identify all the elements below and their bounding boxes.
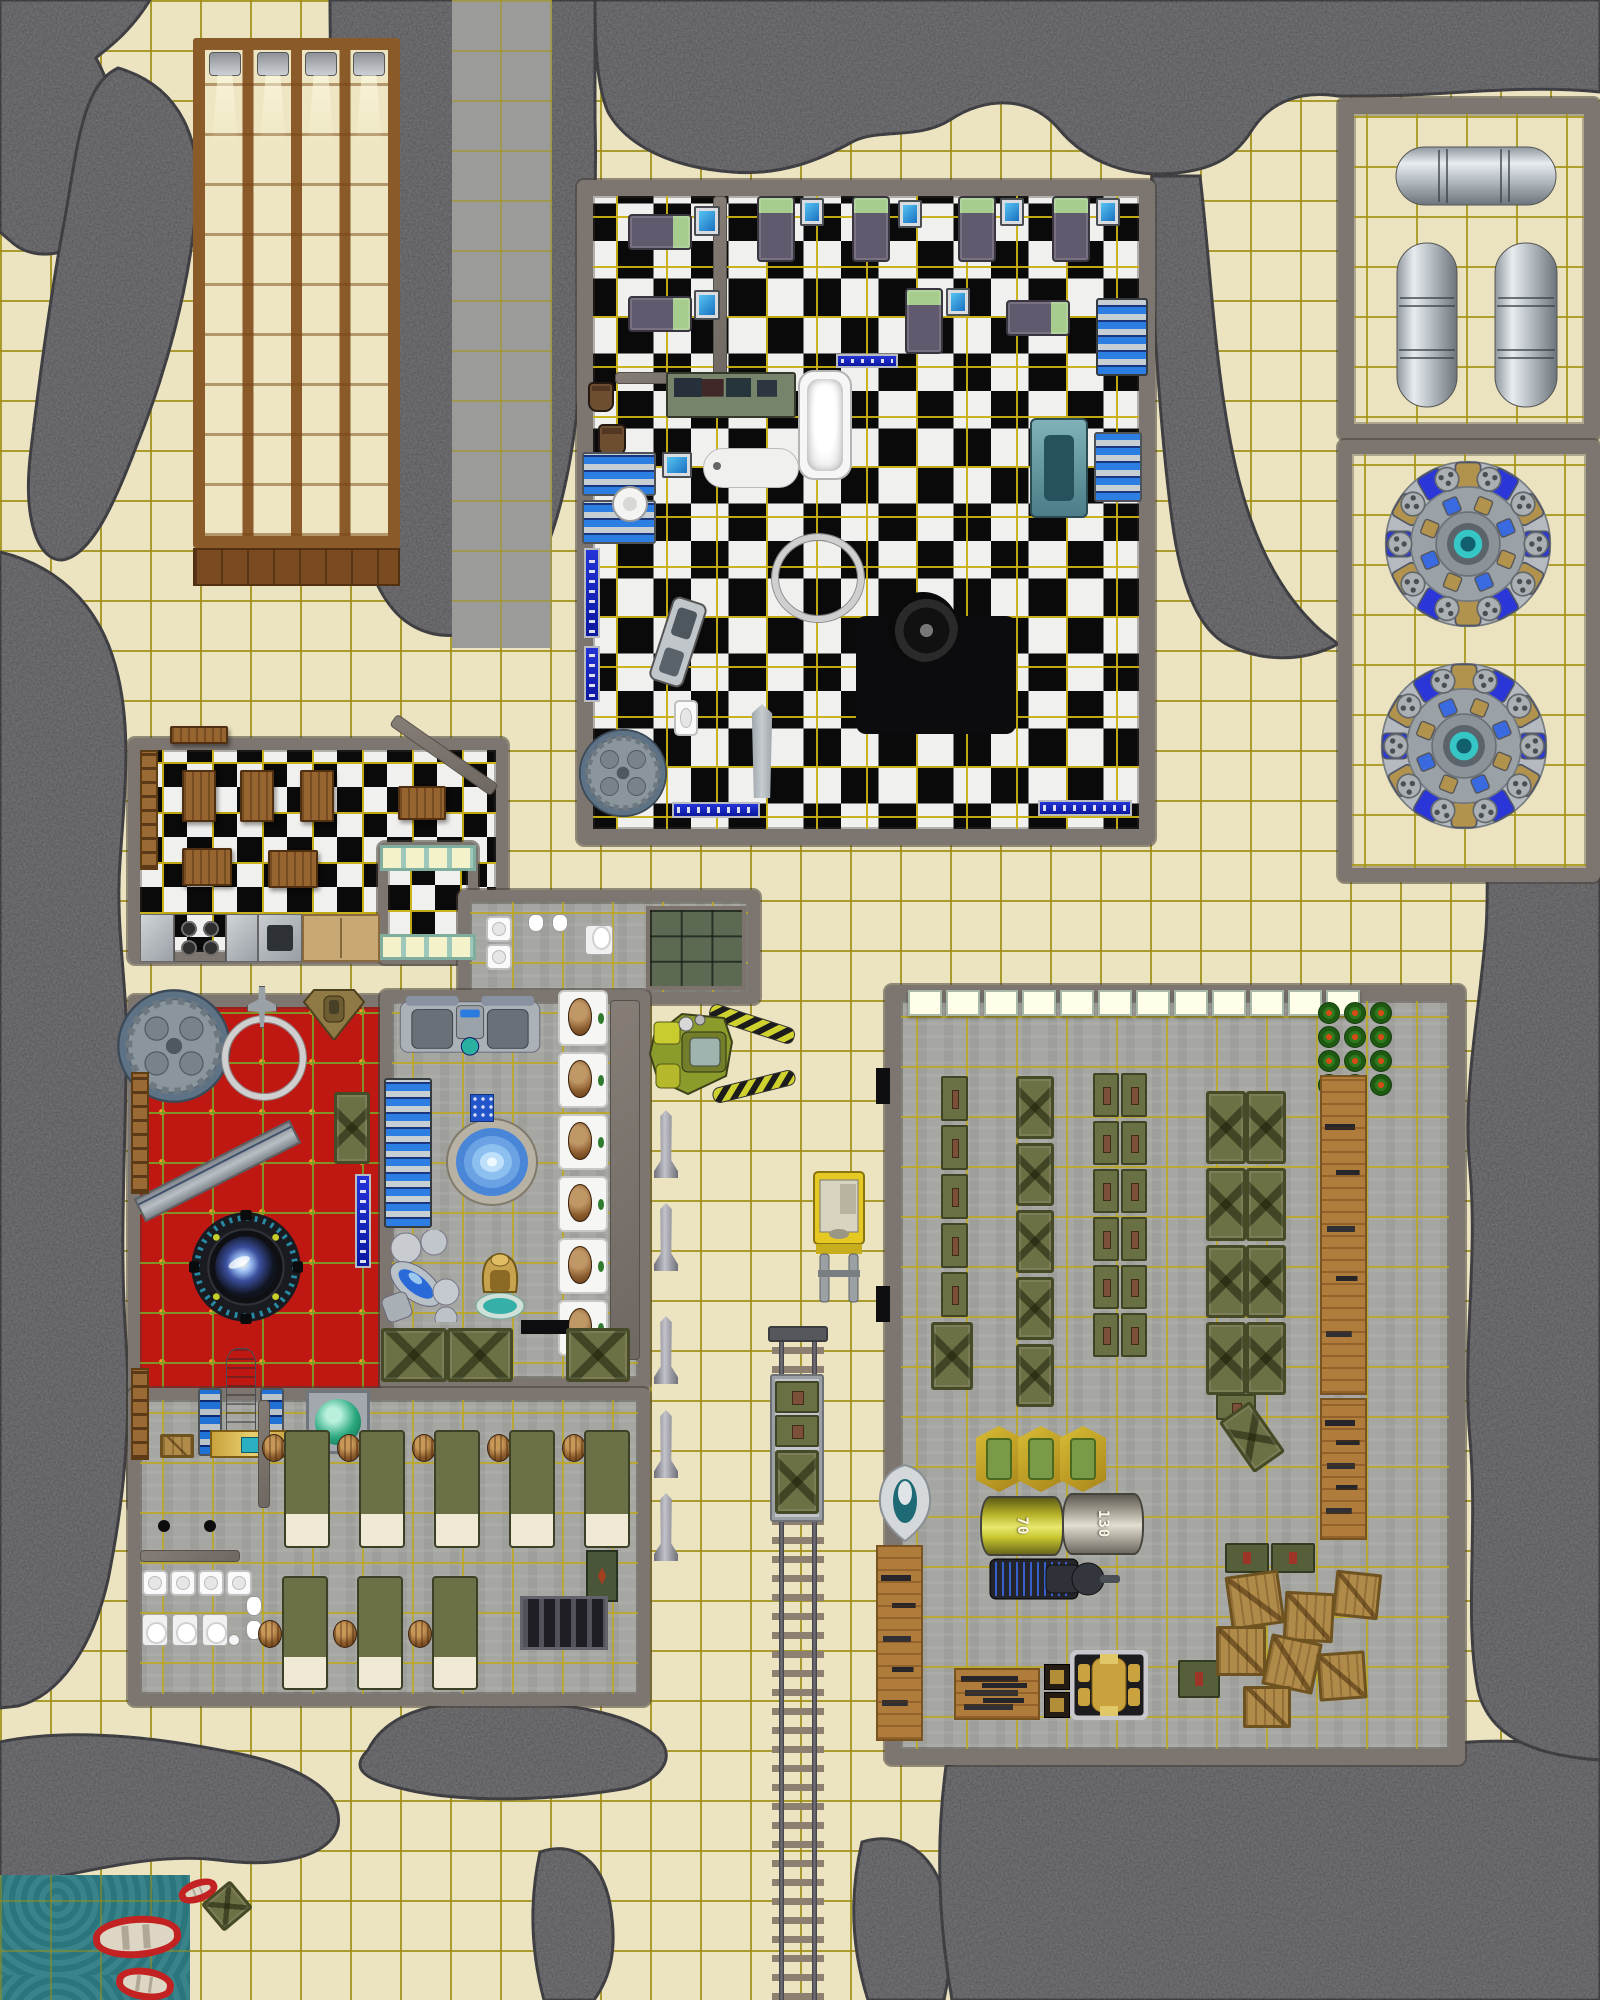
blue-sign-v: [584, 548, 600, 638]
lounge-chair-stall: [558, 1114, 608, 1170]
ammo-crate: [1093, 1265, 1119, 1309]
storage-tank: [1395, 146, 1557, 206]
light-panel: [984, 990, 1018, 1016]
barrel: [412, 1434, 436, 1462]
dining-table: [240, 770, 274, 822]
blue-sign-h: [1038, 800, 1132, 816]
light-panel: [946, 990, 980, 1016]
weapon-table: [954, 1668, 1040, 1720]
light-panel: [1060, 990, 1094, 1016]
hospital-bed: [1052, 196, 1090, 262]
ammo-crate: [1121, 1121, 1147, 1165]
toilet: [202, 1614, 228, 1646]
blue-sign-h: [672, 802, 760, 818]
weapon-rack: [1320, 1075, 1367, 1395]
monitor: [662, 452, 692, 478]
door-black: [876, 1068, 890, 1104]
lane-lamp: [209, 52, 241, 76]
ammo-box: [1271, 1543, 1315, 1573]
hex-pod: [976, 1426, 1022, 1492]
hospital-bed: [905, 288, 943, 354]
storage-tank: [1494, 242, 1558, 408]
monitor: [800, 198, 824, 226]
ammo-crate: [941, 1223, 968, 1268]
crate-dark: [1044, 1664, 1070, 1690]
sink-white: [674, 700, 698, 736]
reactor-core: [1384, 460, 1552, 628]
supply-crate: [381, 1328, 447, 1382]
weapon-rack: [876, 1545, 923, 1741]
urinal: [552, 914, 568, 932]
stone-strip: [610, 1000, 640, 1360]
throne: [474, 1248, 526, 1320]
supply-crate: [1206, 1322, 1246, 1395]
ladder: [131, 1368, 149, 1460]
blue-sign-h: [836, 354, 898, 368]
dining-table: [398, 786, 446, 820]
wooden-crate: [1316, 1650, 1367, 1701]
metal-ring: [772, 534, 864, 622]
monitor: [1000, 198, 1024, 226]
scanner-station: [398, 996, 542, 1058]
bunk-bed: [282, 1576, 328, 1690]
mine: [1318, 1002, 1340, 1024]
light-panel: [1136, 990, 1170, 1016]
fuel-drum: 130: [1062, 1493, 1144, 1555]
counter-metal: [140, 914, 174, 962]
brewery: [382, 1230, 470, 1322]
mine: [1370, 1050, 1392, 1072]
lane-lamp: [257, 52, 289, 76]
ammo-box: [1225, 1543, 1269, 1573]
toilet: [142, 1614, 168, 1646]
locker-green: [586, 1550, 618, 1602]
light-panel: [1174, 990, 1208, 1016]
storage-tank: [1396, 242, 1458, 408]
ammo-crate: [1121, 1169, 1147, 1213]
washbasin: [226, 1570, 252, 1596]
barrel: [262, 1434, 286, 1462]
monitor: [898, 200, 922, 228]
supply-crate: [1016, 1143, 1054, 1206]
wooden-crate: [1332, 1570, 1383, 1621]
floor-hatch: [578, 728, 668, 818]
ammo-crate: [1093, 1217, 1119, 1261]
sink-counter: [258, 914, 302, 962]
door-black: [521, 1320, 569, 1334]
rocket-rig: [226, 1348, 256, 1442]
lounge-chair-stall: [558, 990, 608, 1046]
range-dock: [193, 548, 400, 586]
door-black: [876, 1286, 890, 1322]
ammo-crate: [1093, 1169, 1119, 1213]
ladder: [131, 1072, 149, 1194]
washbasin: [198, 1570, 224, 1596]
wood-bench: [140, 750, 158, 870]
diagonal-wall: [389, 714, 499, 797]
missile: [654, 1410, 678, 1478]
mine: [1370, 1002, 1392, 1024]
round-table: [612, 486, 648, 522]
lane-lamp: [305, 52, 337, 76]
urinal: [528, 914, 544, 932]
supply-crate: [1246, 1245, 1286, 1318]
stove: [174, 914, 226, 962]
hospital-bed: [852, 196, 890, 262]
dining-table: [170, 726, 228, 744]
map-canvas[interactable]: 70130: [0, 0, 1600, 2000]
black-scope: [888, 592, 958, 662]
chair-brown: [588, 382, 614, 412]
hospital-bed: [1006, 300, 1070, 336]
bunk-bed: [434, 1430, 480, 1548]
dot-black: [204, 1520, 216, 1532]
raft-token[interactable]: [92, 1913, 183, 1961]
sink-white: [486, 944, 512, 970]
light-panel: [1212, 990, 1246, 1016]
ammo-crate: [1121, 1073, 1147, 1117]
missile: [654, 1110, 678, 1178]
supply-crate: [1016, 1344, 1054, 1407]
grate: [520, 1596, 608, 1650]
supply-crate: [1016, 1076, 1054, 1139]
reactor-core: [1380, 662, 1548, 830]
object-layer: 70130: [0, 0, 1600, 2000]
sink-white: [486, 916, 512, 942]
rail-buffer: [768, 1326, 828, 1342]
alien-pod: [876, 1463, 934, 1543]
barrel: [337, 1434, 361, 1462]
supply-crate: [1206, 1168, 1246, 1241]
light-panel: [1250, 990, 1284, 1016]
shuttle: [745, 704, 779, 798]
toilet: [172, 1614, 198, 1646]
crate-olive-s: [775, 1381, 819, 1413]
lounger: [703, 448, 799, 488]
wooden-crate: [1216, 1626, 1266, 1676]
fuel-drum: 70: [980, 1496, 1064, 1556]
hot-tub: [446, 1118, 538, 1206]
supply-crate: [334, 1092, 370, 1164]
weapon-rack: [1320, 1398, 1367, 1540]
light-panel: [908, 990, 942, 1016]
lounge-chair-stall: [558, 1176, 608, 1232]
ammo-crate: [1121, 1313, 1147, 1357]
forklift-token[interactable]: [810, 1170, 868, 1308]
ammo-box: [1178, 1660, 1220, 1698]
console-bank: [384, 1078, 432, 1228]
monitor: [946, 288, 970, 316]
bunk-bed: [357, 1576, 403, 1690]
metal-ring: [222, 1016, 306, 1100]
mine: [1370, 1074, 1392, 1096]
mine: [1370, 1026, 1392, 1048]
supply-crate: [1016, 1277, 1054, 1340]
barrel: [258, 1620, 282, 1648]
dropship: [302, 988, 366, 1040]
supply-crate: [1016, 1210, 1054, 1273]
blue-sign-v: [355, 1174, 371, 1268]
supply-crate: [1246, 1168, 1286, 1241]
supply-crate: [1206, 1091, 1246, 1164]
ammo-crate: [1093, 1121, 1119, 1165]
crate-olive-s: [775, 1415, 819, 1447]
urinal: [246, 1596, 262, 1616]
counter-metal: [226, 914, 258, 962]
wall: [140, 1550, 240, 1562]
box-table: [302, 914, 380, 962]
light-panel: [1288, 990, 1322, 1016]
missile: [654, 1493, 678, 1561]
dining-table: [182, 770, 216, 822]
monitor: [694, 290, 720, 320]
bunk-bed: [584, 1430, 630, 1548]
bunk-bed: [509, 1430, 555, 1548]
pool-mat: [470, 1094, 494, 1122]
mech-token[interactable]: [648, 1002, 796, 1110]
console-bank: [1096, 298, 1148, 376]
supply-crate: [931, 1322, 973, 1390]
lounge-chair-stall: [558, 1238, 608, 1294]
crate-dark: [1044, 1692, 1070, 1718]
hospital-bed: [757, 196, 795, 262]
drum-label: 130: [1074, 1485, 1132, 1563]
ammo-crate: [1121, 1217, 1147, 1261]
barrel: [562, 1434, 586, 1462]
lab-console: [1094, 432, 1142, 502]
lounge-chair-stall: [558, 1052, 608, 1108]
dining-table: [182, 848, 232, 886]
ammo-crate: [941, 1125, 968, 1170]
ammo-crate: [1093, 1313, 1119, 1357]
supply-crate: [1246, 1091, 1286, 1164]
console-desk: [666, 372, 796, 418]
ramp: [134, 1120, 302, 1223]
washbasin: [142, 1570, 168, 1596]
dot-white: [228, 1634, 240, 1646]
light-panel: [1022, 990, 1056, 1016]
ammo-crate: [941, 1174, 968, 1219]
ammo-crate: [1121, 1265, 1147, 1309]
supply-crate: [1246, 1322, 1286, 1395]
raft-token[interactable]: [114, 1964, 176, 2000]
dining-table: [300, 770, 334, 822]
mine: [1344, 1026, 1366, 1048]
ammo-crate: [941, 1272, 968, 1317]
bunk-bed: [359, 1430, 405, 1548]
dot-black: [158, 1520, 170, 1532]
barrel: [333, 1620, 357, 1648]
wooden-crate: [1243, 1686, 1291, 1728]
gurney: [647, 595, 708, 690]
lane-lamp: [353, 52, 385, 76]
hospital-bed: [628, 296, 692, 332]
washbasin: [170, 1570, 196, 1596]
bunk-bed: [432, 1576, 478, 1690]
ammo-crate: [941, 1076, 968, 1121]
mine: [1318, 1026, 1340, 1048]
supply-crate: [1206, 1245, 1246, 1318]
crate-wood: [160, 1434, 194, 1458]
ammo-crate: [1093, 1073, 1119, 1117]
window-strip: [380, 934, 476, 960]
wooden-crate: [1225, 1570, 1286, 1631]
crate-olive-v: [775, 1450, 819, 1514]
barrel: [408, 1620, 432, 1648]
hex-pod: [1018, 1426, 1064, 1492]
supply-crate: [566, 1328, 630, 1382]
missile: [654, 1316, 678, 1384]
hospital-bed: [958, 196, 996, 262]
supply-crate: [447, 1328, 513, 1382]
missile: [654, 1203, 678, 1271]
mine: [1318, 1050, 1340, 1072]
bathtub: [798, 370, 852, 480]
hex-pod: [1060, 1426, 1106, 1492]
hospital-bed: [628, 214, 692, 250]
mine: [1344, 1050, 1366, 1072]
monitor: [694, 206, 720, 236]
bunk-bed: [284, 1430, 330, 1548]
window-strip: [380, 845, 476, 871]
dining-table: [268, 850, 318, 888]
mine: [1344, 1002, 1366, 1024]
tracked-vehicle[interactable]: [988, 1553, 1122, 1605]
holo-portal: [188, 1210, 304, 1324]
barrel: [487, 1434, 511, 1462]
monitor: [1096, 198, 1120, 226]
light-panel: [1098, 990, 1132, 1016]
medscanner: [1030, 418, 1088, 518]
toilet: [585, 925, 613, 955]
tile-pad: [646, 906, 746, 990]
wooden-crate: [1283, 1591, 1336, 1644]
blue-sign-v: [584, 646, 600, 702]
gold-device: [1070, 1650, 1148, 1720]
